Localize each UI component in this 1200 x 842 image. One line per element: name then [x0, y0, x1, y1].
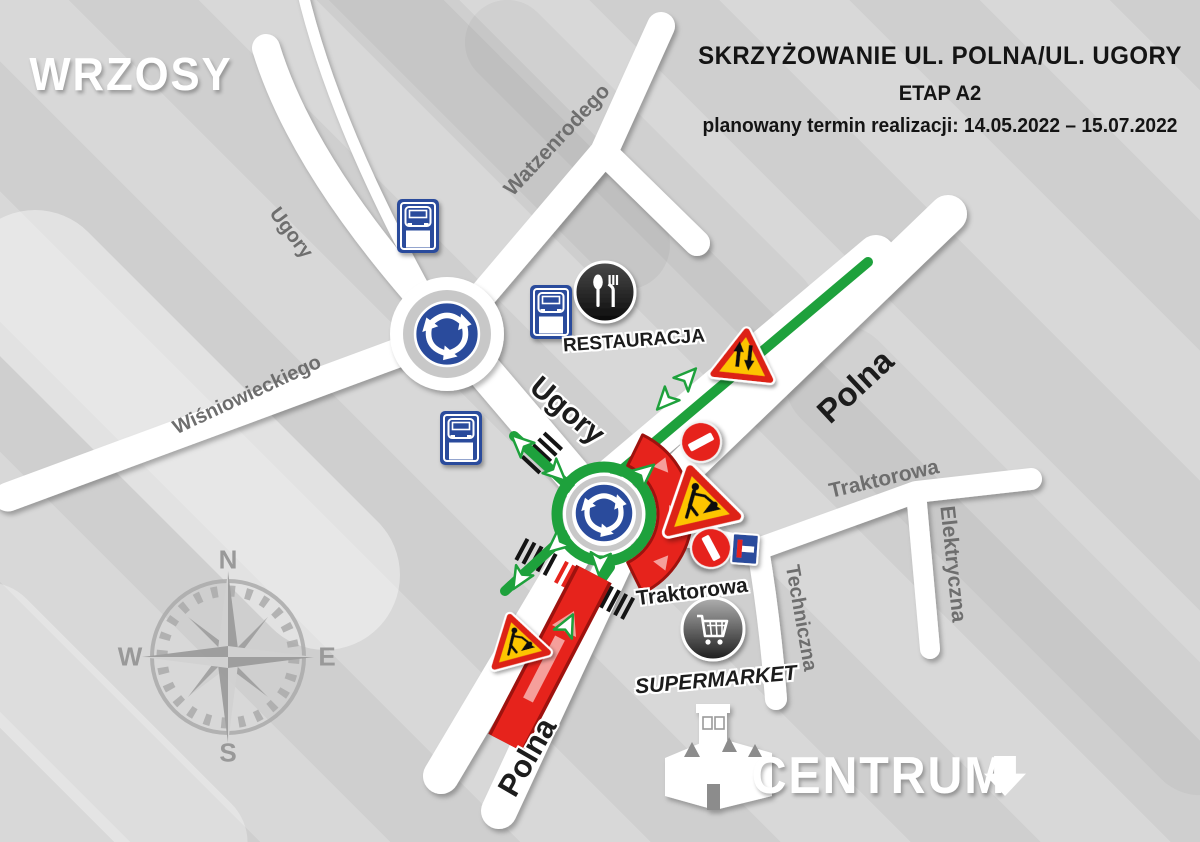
compass-n: N	[219, 545, 238, 576]
wrzosy-label: WRZOSY	[29, 51, 232, 97]
roundabout-sign-icon	[415, 302, 479, 366]
bus-stop-icon	[397, 199, 439, 253]
supermarket-icon	[682, 598, 744, 660]
date-range-label: planowany termin realizacji: 14.05.2022 …	[690, 115, 1189, 138]
compass-rose	[142, 571, 314, 743]
roundabout-sign-icon	[575, 484, 634, 543]
roundabout-top	[390, 277, 504, 391]
roundabout-central	[563, 473, 645, 555]
compass-e: E	[318, 642, 335, 673]
map-canvas: SKRZYŻOWANIE UL. POLNA/UL. UGORY ETAP A2…	[0, 0, 1200, 842]
bus-stop-icon	[530, 285, 572, 339]
road-elektryczna	[916, 492, 930, 649]
compass-w: W	[118, 642, 143, 673]
dead-end-sign-icon	[731, 533, 759, 565]
stage-label: ETAP A2	[690, 82, 1189, 106]
compass-s: S	[219, 738, 236, 769]
title-block: SKRZYŻOWANIE UL. POLNA/UL. UGORY ETAP A2…	[690, 42, 1189, 138]
restaurant-icon	[575, 262, 635, 322]
page-title: SKRZYŻOWANIE UL. POLNA/UL. UGORY	[690, 42, 1189, 71]
road-watzenrodego-stub	[604, 152, 697, 243]
road-traktorowa-east	[758, 479, 1031, 549]
centrum-label: CENTRUM	[752, 750, 1007, 802]
bus-stop-icon	[440, 411, 482, 465]
